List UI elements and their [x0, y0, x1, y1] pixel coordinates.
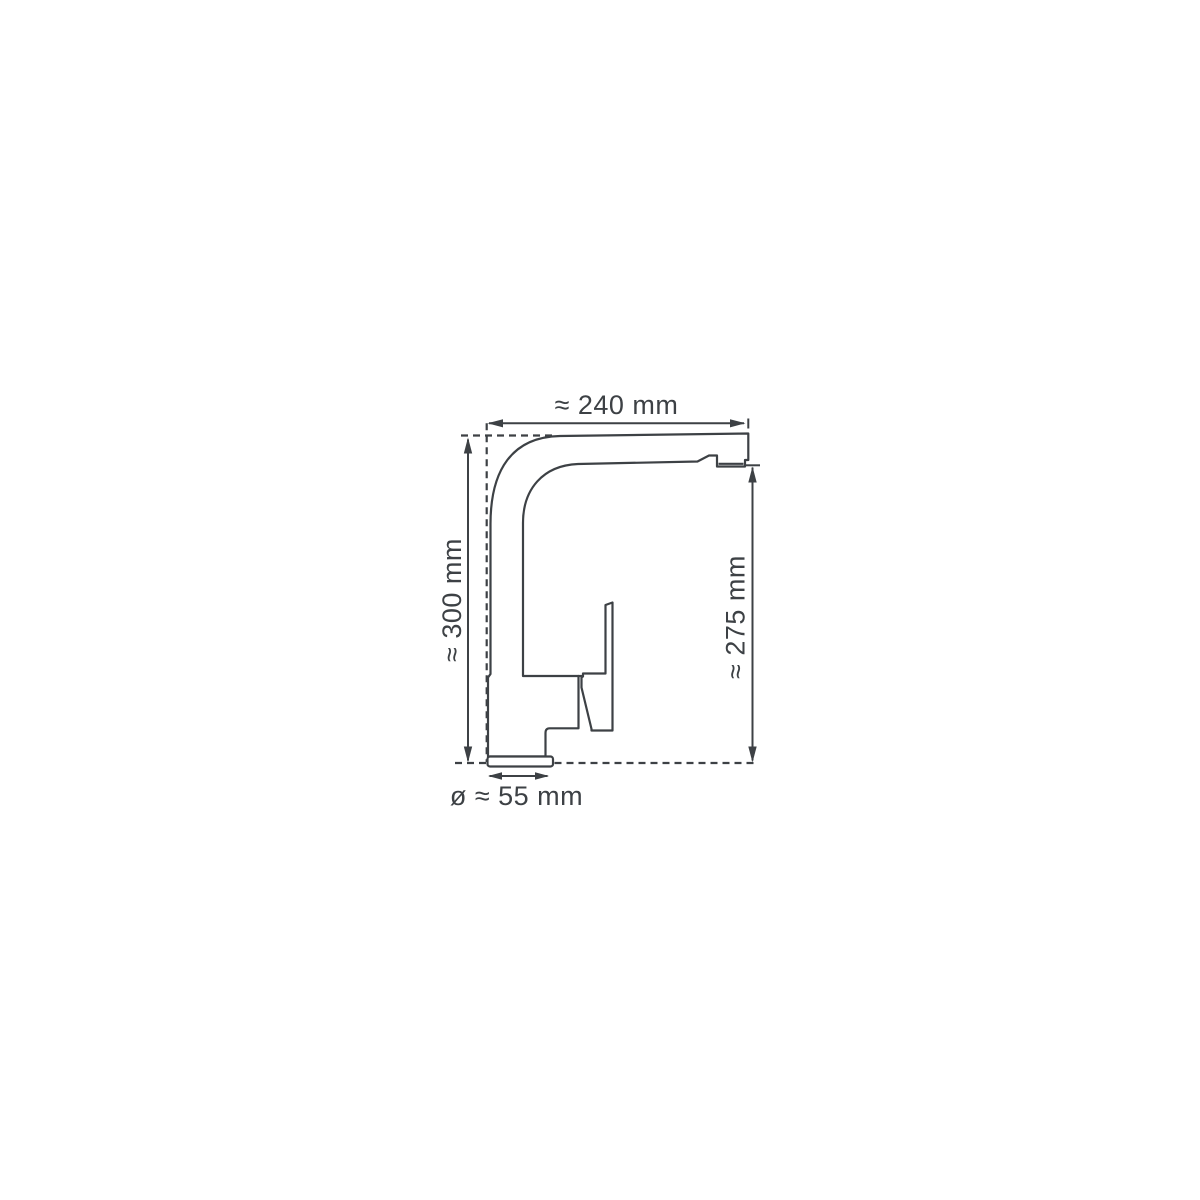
dimension-total-height: ≈ 300 mm [437, 438, 472, 763]
faucet-base-plate [488, 757, 554, 767]
dimension-spout-width: ≈ 240 mm [488, 390, 749, 429]
dimension-base-diameter: ø ≈ 55 mm [450, 772, 583, 811]
arrow-down-icon [748, 747, 756, 763]
faucet-dimension-diagram: ≈ 240 mm ≈ 300 mm ≈ 275 mm ø ≈ 55 mm [0, 0, 1200, 1200]
arrow-left-icon [488, 772, 502, 780]
arrow-right-icon [535, 772, 549, 780]
dimension-label-outlet-height: ≈ 275 mm [721, 555, 751, 679]
dimension-label-total-height: ≈ 300 mm [437, 538, 467, 662]
diagram-canvas: ≈ 240 mm ≈ 300 mm ≈ 275 mm ø ≈ 55 mm [0, 0, 1200, 1200]
arrow-down-icon [464, 747, 472, 763]
arrow-up-icon [748, 467, 756, 483]
faucet-drawing [488, 434, 749, 767]
faucet-handle-lever [582, 603, 613, 731]
dimension-outlet-height: ≈ 275 mm [721, 465, 761, 762]
arrow-up-icon [464, 438, 472, 454]
dimension-label-spout-width: ≈ 240 mm [555, 390, 679, 420]
faucet-body-outline [488, 434, 748, 757]
dimension-label-base-diameter: ø ≈ 55 mm [450, 781, 583, 811]
arrow-left-icon [488, 419, 504, 427]
arrow-right-icon [730, 419, 746, 427]
